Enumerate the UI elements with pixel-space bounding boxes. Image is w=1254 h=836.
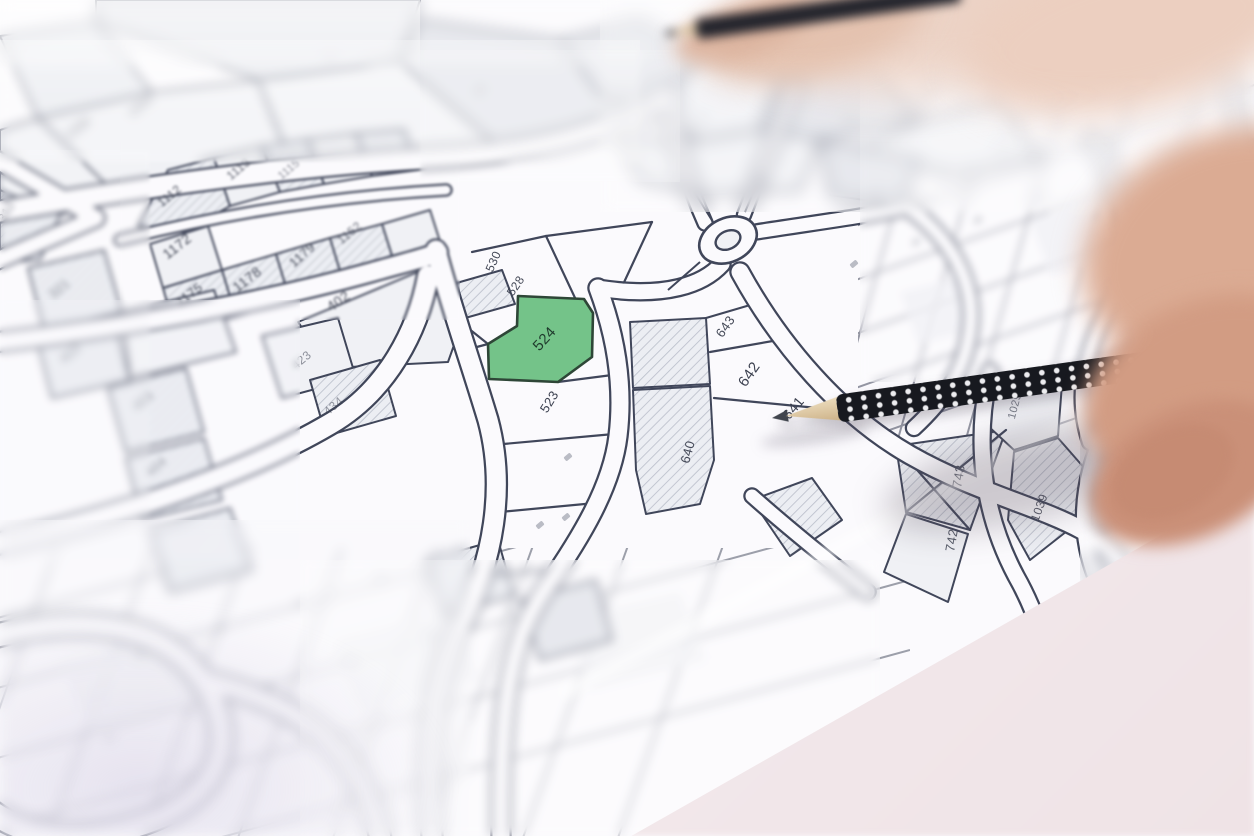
parcel-label-524: 524 xyxy=(530,324,560,355)
parcel-label-1175: 1175 xyxy=(173,279,206,309)
parcel-label-1039: 1039 xyxy=(1028,492,1051,523)
parcel-label-1113: 1113 xyxy=(224,155,253,183)
parcel-label-402: 402 xyxy=(323,287,352,314)
blur-veil-bottom xyxy=(300,560,880,836)
highlight-wash-top-left xyxy=(0,0,420,130)
parcel-label-422: 422 xyxy=(57,339,84,365)
parcel-boundary-lines xyxy=(458,222,1006,575)
map-paper xyxy=(0,0,1254,836)
roads xyxy=(0,58,1241,836)
parcel-label-1115: 1115 xyxy=(276,157,302,182)
parcel-label-1178: 1178 xyxy=(229,263,264,295)
second-pencil-body xyxy=(695,0,961,39)
parcel-label-640: 640 xyxy=(677,439,697,465)
paper-edge-highlight xyxy=(558,334,1234,700)
parcel-label-312: 312 xyxy=(0,198,18,223)
blur-veil-mid-top xyxy=(420,50,680,182)
blur-veil-top-right xyxy=(600,0,1254,212)
lavender-wash-bottom-left xyxy=(0,600,460,836)
hand-top-fingertip xyxy=(667,0,816,76)
blur-veil-top xyxy=(0,0,1254,66)
blur-veil-top-left xyxy=(0,40,640,162)
parcel-label-1112: 1112 xyxy=(155,182,184,210)
parcel-label-641: 641 xyxy=(779,393,807,422)
blur-veil-strip xyxy=(120,140,460,320)
parcel-label-743: 743 xyxy=(949,464,968,489)
parcel-label-404: 404 xyxy=(143,453,170,479)
hand-right-lower-finger xyxy=(1068,371,1254,575)
second-pencil-wood-icon xyxy=(670,21,702,41)
parcel-number-labels: 1322132631211121113111511521172117511781… xyxy=(0,91,1051,553)
blur-veil-left-mid xyxy=(0,300,300,560)
pencil-graphite-tip-icon xyxy=(771,410,789,424)
parcel-label-1172: 1172 xyxy=(159,230,194,262)
hand-top-finger xyxy=(692,0,938,104)
parcel-label-423: 423 xyxy=(289,348,314,372)
parcel-label-321: 321 xyxy=(46,275,73,301)
cadastral-map: 1322132631211121113111511521172117511781… xyxy=(0,0,1254,836)
roundabout xyxy=(668,172,764,290)
parcel-label-642: 642 xyxy=(735,359,764,390)
hand-top-palm xyxy=(751,0,1250,121)
parcel-label-403: 403 xyxy=(130,387,157,413)
hand-right-fingertip xyxy=(1096,404,1250,539)
highlighted-parcel-524 xyxy=(488,296,593,382)
parcel-label-528: 528 xyxy=(504,273,527,298)
parcel-label-523: 523 xyxy=(537,388,562,415)
pencil-studded-body xyxy=(835,320,1254,423)
pencil-wood-tip-icon xyxy=(784,397,841,428)
second-pencil xyxy=(662,0,962,44)
parcel-polygons xyxy=(0,0,1150,660)
parcel-label-1152: 1152 xyxy=(334,219,364,247)
parcel-label-1326: 1326 xyxy=(62,114,93,142)
parcel-label-742: 742 xyxy=(942,528,961,553)
blur-veil-right-grid xyxy=(860,40,1254,382)
hand-right-mid-finger xyxy=(1057,261,1254,519)
parcel-label-1179: 1179 xyxy=(286,239,318,270)
parcel-label-643: 643 xyxy=(713,313,738,340)
parcel-label-1322: 1322 xyxy=(125,91,156,119)
hand-top-knuckle xyxy=(947,0,1254,144)
second-pencil-lead-icon xyxy=(662,28,675,38)
blur-veil-left xyxy=(0,150,150,570)
hand-shadow xyxy=(874,395,1187,555)
photo-cadastral-map-scene: 1322132631211121113111511521172117511781… xyxy=(0,0,1254,836)
unreadable-number-smudges xyxy=(105,6,1216,744)
hand-right-upper-fingers xyxy=(1053,91,1254,410)
blur-veil-bottom-left xyxy=(0,520,470,836)
blur-veil-right-low xyxy=(1080,360,1254,600)
blurry-parcel-grids xyxy=(0,0,1254,836)
map-paper-edge xyxy=(0,0,1254,836)
parcel-label-530: 530 xyxy=(483,249,504,274)
parcel-label-434: 434 xyxy=(321,394,346,418)
pencil-shadow xyxy=(759,420,870,451)
parcel-label-1029: 1029 xyxy=(1006,392,1024,420)
